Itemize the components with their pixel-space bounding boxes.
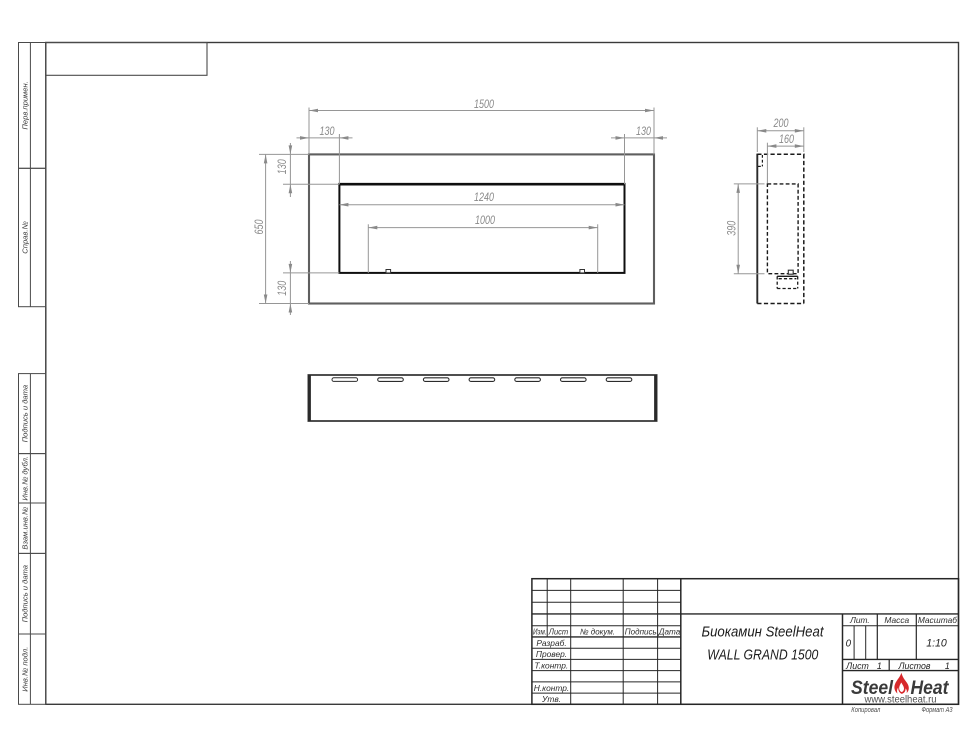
svg-text:Подпись: Подпись — [625, 626, 657, 636]
svg-text:Копировал: Копировал — [851, 705, 881, 714]
svg-text:130: 130 — [275, 280, 289, 295]
svg-text:Н.контр.: Н.контр. — [534, 683, 569, 693]
svg-text:Биокамин SteelHeat: Биокамин SteelHeat — [702, 624, 825, 641]
svg-text:Перв.примен.: Перв.примен. — [21, 81, 30, 129]
svg-text:130: 130 — [320, 124, 335, 138]
svg-text:1: 1 — [945, 661, 950, 671]
svg-text:1:10: 1:10 — [926, 638, 947, 650]
svg-text:Инв.№ дубл.: Инв.№ дубл. — [21, 456, 30, 501]
svg-text:WALL GRAND 1500: WALL GRAND 1500 — [707, 647, 819, 664]
svg-text:Инв.№ подл.: Инв.№ подл. — [21, 647, 30, 692]
svg-text:Подпись и дата: Подпись и дата — [21, 565, 30, 622]
svg-text:Изм.: Изм. — [533, 626, 547, 636]
svg-text:130: 130 — [275, 159, 289, 174]
svg-text:160: 160 — [779, 132, 794, 146]
svg-text:Подпись и дата: Подпись и дата — [21, 385, 30, 442]
svg-text:1000: 1000 — [475, 213, 495, 227]
svg-text:0: 0 — [846, 639, 852, 650]
svg-text:1: 1 — [877, 661, 882, 671]
svg-text:200: 200 — [773, 116, 789, 130]
svg-text:Масса: Масса — [884, 615, 909, 625]
svg-text:Утв.: Утв. — [541, 694, 561, 704]
svg-text:130: 130 — [636, 124, 651, 138]
svg-text:№ докум.: № докум. — [580, 626, 615, 636]
svg-text:Лит.: Лит. — [849, 615, 870, 625]
svg-text:Лист: Лист — [548, 626, 568, 636]
svg-text:Взам.инв.№: Взам.инв.№ — [21, 507, 30, 550]
svg-text:1500: 1500 — [474, 97, 494, 111]
svg-text:650: 650 — [252, 219, 266, 234]
svg-text:Дата: Дата — [658, 626, 681, 636]
svg-text:Т.контр.: Т.контр. — [534, 660, 568, 670]
svg-text:www.steelheat.ru: www.steelheat.ru — [864, 694, 937, 705]
svg-text:1240: 1240 — [474, 190, 494, 204]
svg-text:Провер.: Провер. — [536, 649, 567, 659]
svg-text:Листов: Листов — [897, 661, 930, 671]
svg-text:Лист: Лист — [845, 661, 869, 671]
svg-text:390: 390 — [725, 221, 739, 236]
svg-text:Масштаб: Масштаб — [918, 615, 957, 625]
svg-text:Справ.№: Справ.№ — [21, 221, 30, 253]
svg-text:Разраб.: Разраб. — [536, 638, 566, 648]
svg-text:Формат А3: Формат А3 — [922, 705, 954, 714]
